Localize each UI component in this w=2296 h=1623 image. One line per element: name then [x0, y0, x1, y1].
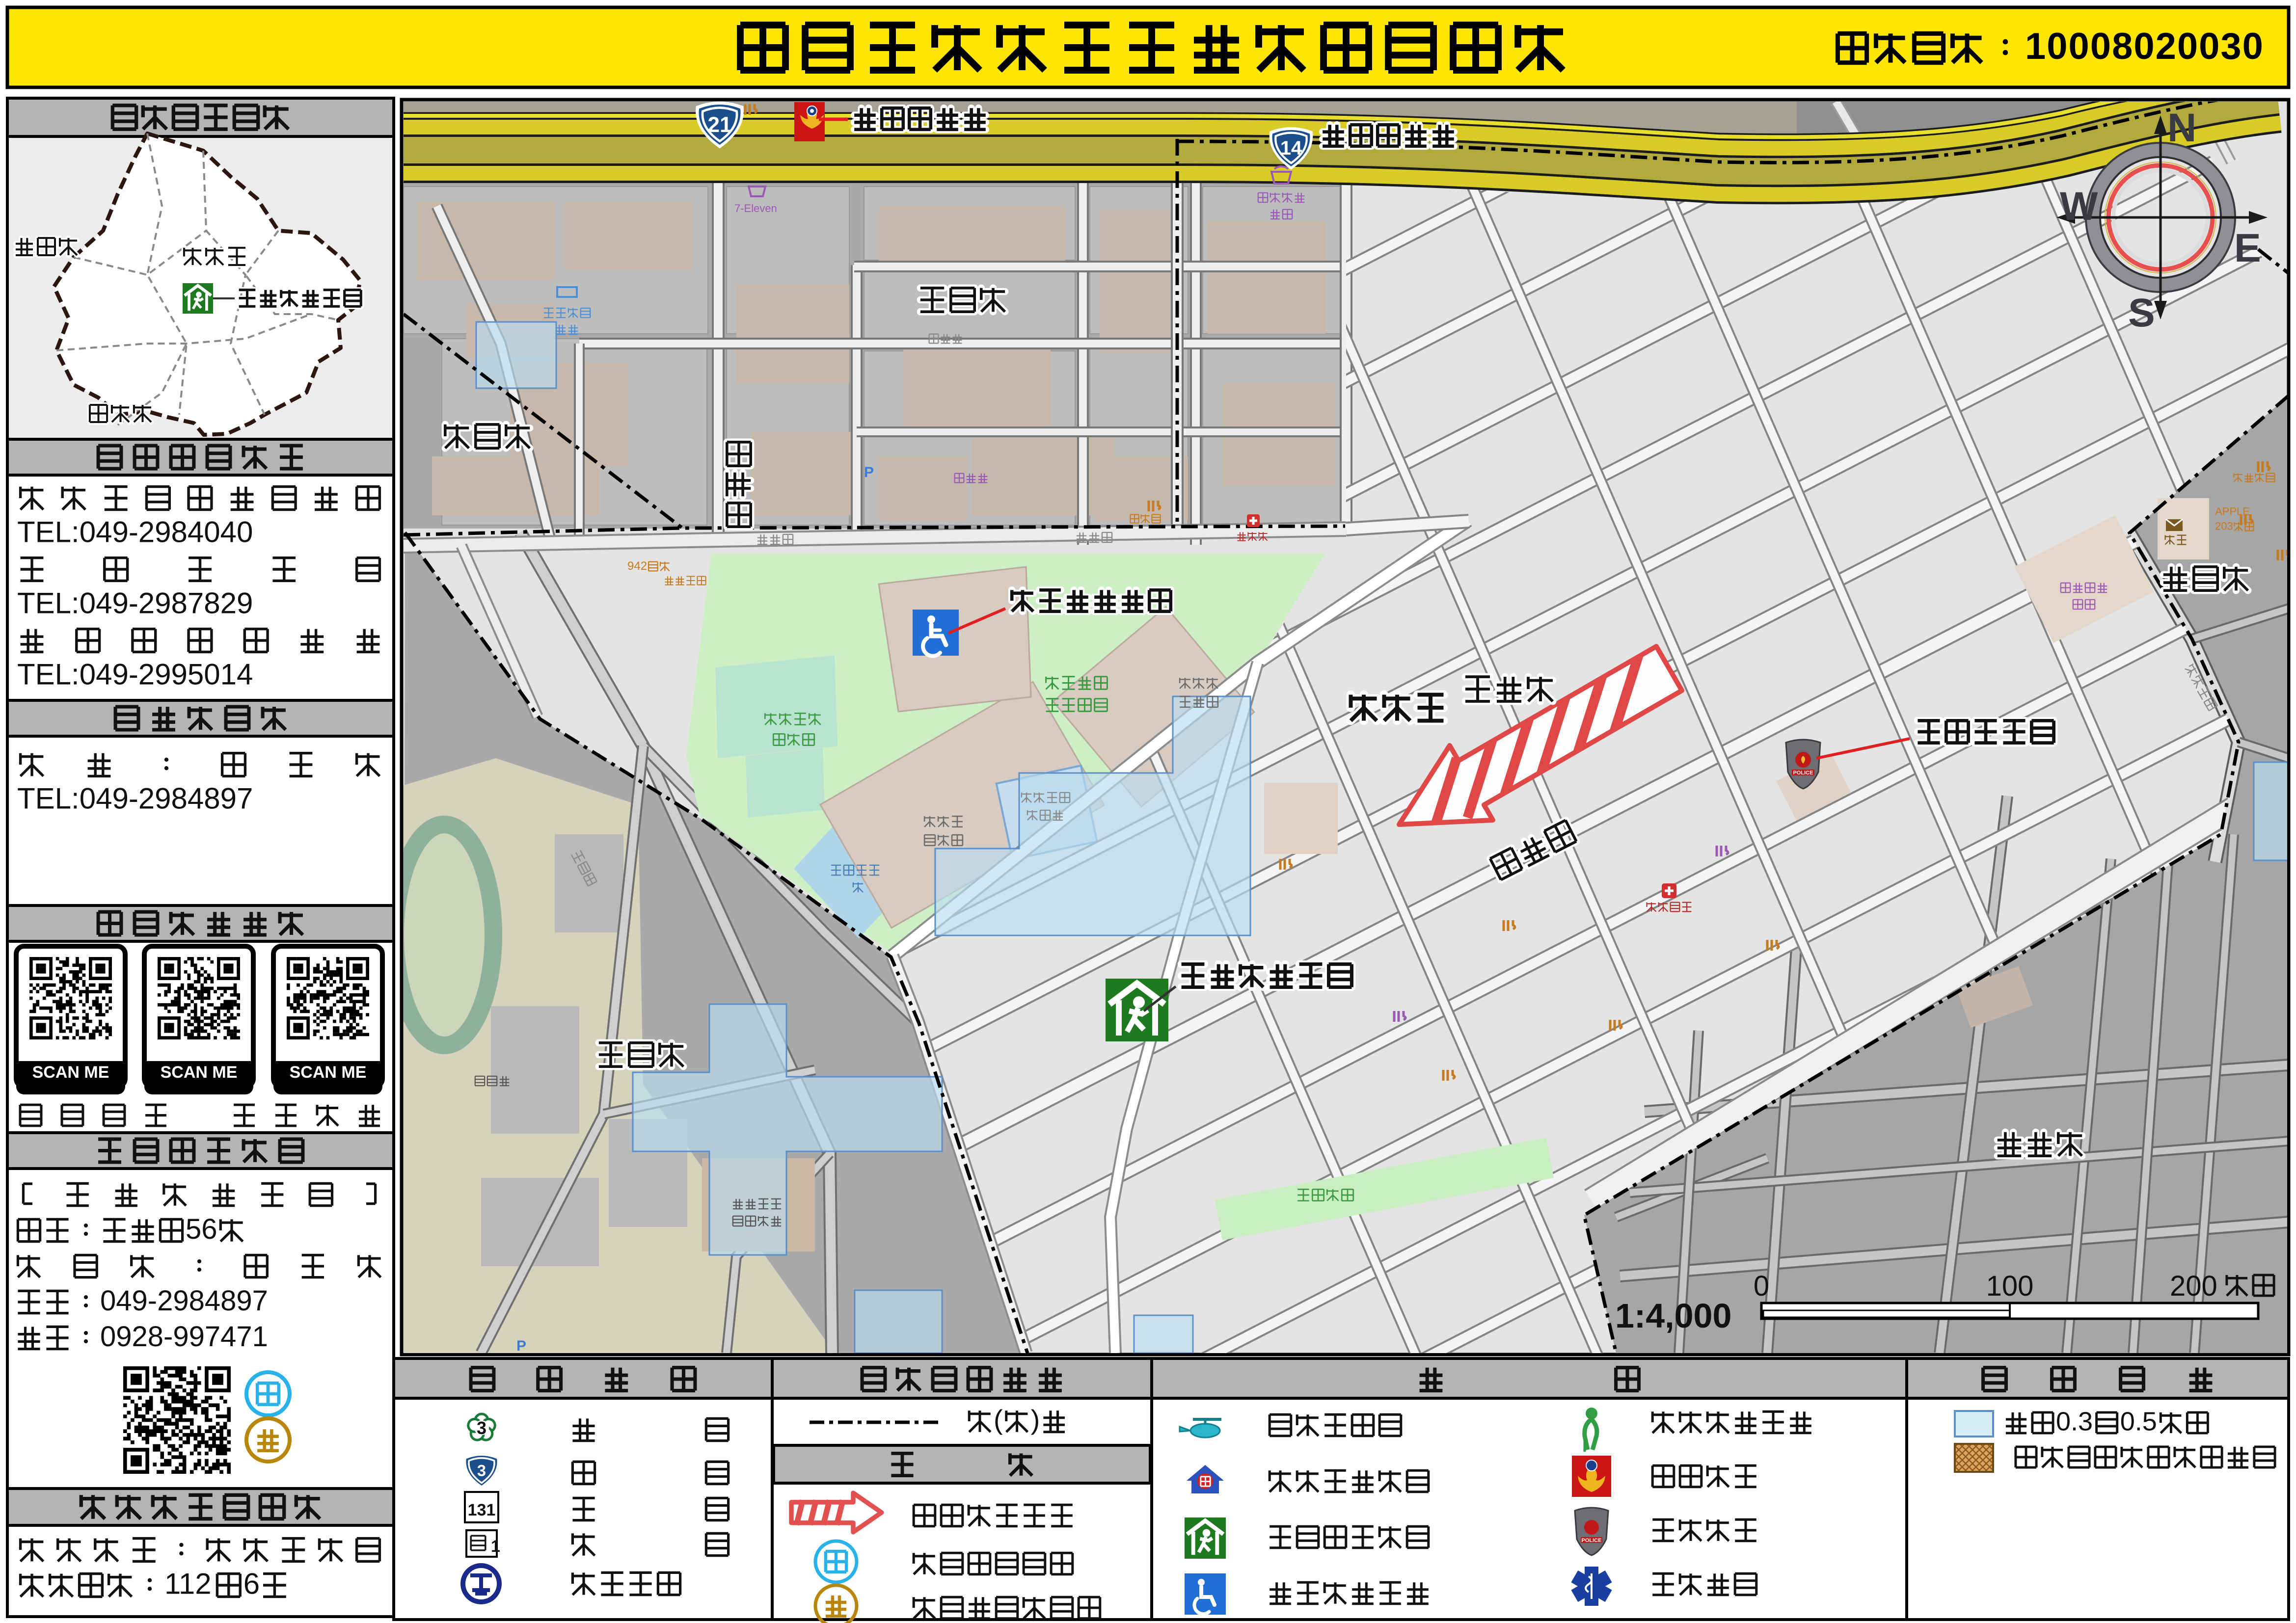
- svg-text:1: 1: [491, 1537, 500, 1556]
- svg-text:APPLE: APPLE: [2215, 505, 2250, 517]
- svg-text:POLICE: POLICE: [1793, 770, 1813, 776]
- svg-text:942: 942: [627, 559, 647, 573]
- svg-text:7-Eleven: 7-Eleven: [734, 202, 777, 214]
- svg-text:6: 6: [243, 1567, 260, 1600]
- svg-text:P: P: [516, 1338, 526, 1354]
- svg-text:TEL:049-2987829: TEL:049-2987829: [17, 586, 253, 619]
- svg-text:N: N: [2167, 106, 2196, 150]
- svg-text:SCAN ME: SCAN ME: [290, 1063, 367, 1082]
- svg-text:0.5: 0.5: [2120, 1407, 2157, 1437]
- svg-text:10008020030: 10008020030: [2025, 26, 2264, 67]
- svg-text:049-2984897: 049-2984897: [100, 1285, 268, 1317]
- svg-text:SCAN ME: SCAN ME: [161, 1063, 238, 1082]
- svg-text:W: W: [2060, 184, 2098, 229]
- svg-text:POLICE: POLICE: [1582, 1538, 1602, 1543]
- svg-text:(: (: [994, 1404, 1003, 1435]
- svg-text:0.3: 0.3: [2056, 1407, 2093, 1437]
- svg-text:1:4,000: 1:4,000: [1615, 1297, 1731, 1335]
- svg-text:E: E: [2234, 226, 2261, 270]
- svg-text:S: S: [2128, 291, 2155, 335]
- svg-text:200: 200: [2170, 1270, 2217, 1302]
- svg-text:SCAN ME: SCAN ME: [32, 1063, 109, 1082]
- svg-text:0: 0: [1754, 1270, 1769, 1302]
- svg-text:21: 21: [707, 113, 731, 137]
- svg-text:112: 112: [164, 1567, 212, 1600]
- svg-text:): ): [1031, 1404, 1040, 1435]
- svg-text:TEL:049-2984897: TEL:049-2984897: [17, 782, 253, 815]
- svg-text:3: 3: [477, 1418, 486, 1438]
- svg-text:203: 203: [2215, 520, 2233, 532]
- svg-text:0928-997471: 0928-997471: [100, 1321, 268, 1353]
- svg-text:P: P: [864, 464, 874, 480]
- svg-text:3: 3: [477, 1461, 486, 1479]
- svg-text:100: 100: [1986, 1270, 2034, 1302]
- svg-text:TEL:049-2984040: TEL:049-2984040: [17, 515, 253, 548]
- svg-text:131: 131: [468, 1501, 496, 1519]
- svg-text:56: 56: [186, 1213, 217, 1245]
- svg-text:14: 14: [1280, 137, 1302, 159]
- svg-text:TEL:049-2995014: TEL:049-2995014: [17, 658, 253, 691]
